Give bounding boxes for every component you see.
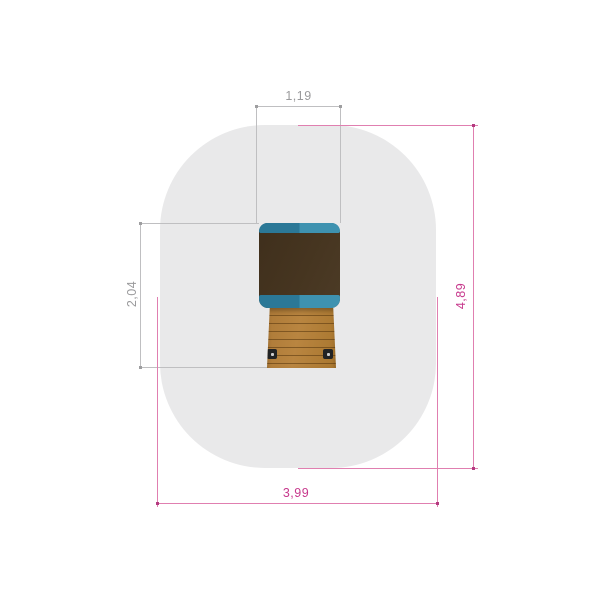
dim-right-height-line (473, 125, 474, 468)
dim-right-height-tick-top (472, 124, 475, 127)
technical-drawing-canvas: 1,19 2,04 4,89 3,99 (0, 0, 600, 600)
dim-bottom-width-label: 3,99 (266, 486, 326, 500)
dim-right-height-extension-bottom (298, 468, 478, 469)
dim-left-height-label: 2,04 (125, 269, 139, 319)
dim-left-height-tick-bottom (139, 366, 142, 369)
dim-right-height-extension-top (298, 125, 478, 126)
dim-bottom-width-tick-left (156, 502, 159, 505)
dim-top-width-label: 1,19 (256, 89, 341, 103)
dim-top-width-tick-right (339, 105, 342, 108)
bolt-left-dot (271, 353, 274, 356)
dim-right-height-label: 4,89 (454, 271, 468, 321)
dim-top-width-extension-left (256, 106, 257, 223)
dim-top-width-extension-right (340, 106, 341, 223)
dim-left-height-line (140, 223, 141, 367)
roof-trim-bottom (259, 295, 340, 308)
bolt-right (323, 349, 333, 359)
roof-trim-top (259, 223, 340, 233)
dim-left-height-extension-bottom (140, 367, 267, 368)
dim-left-height-extension-top (140, 223, 259, 224)
bolt-left (267, 349, 277, 359)
dim-bottom-width-line (157, 503, 437, 504)
roof-panel (259, 223, 340, 308)
dim-top-width-line (256, 106, 341, 107)
bolt-right-dot (327, 353, 330, 356)
dim-left-height-tick-top (139, 222, 142, 225)
dim-bottom-width-tick-right (436, 502, 439, 505)
dim-bottom-width-extension-left (157, 297, 158, 507)
dim-bottom-width-extension-right (437, 297, 438, 507)
dim-top-width-tick-left (255, 105, 258, 108)
dim-right-height-tick-bottom (472, 467, 475, 470)
wooden-ramp (267, 308, 336, 368)
